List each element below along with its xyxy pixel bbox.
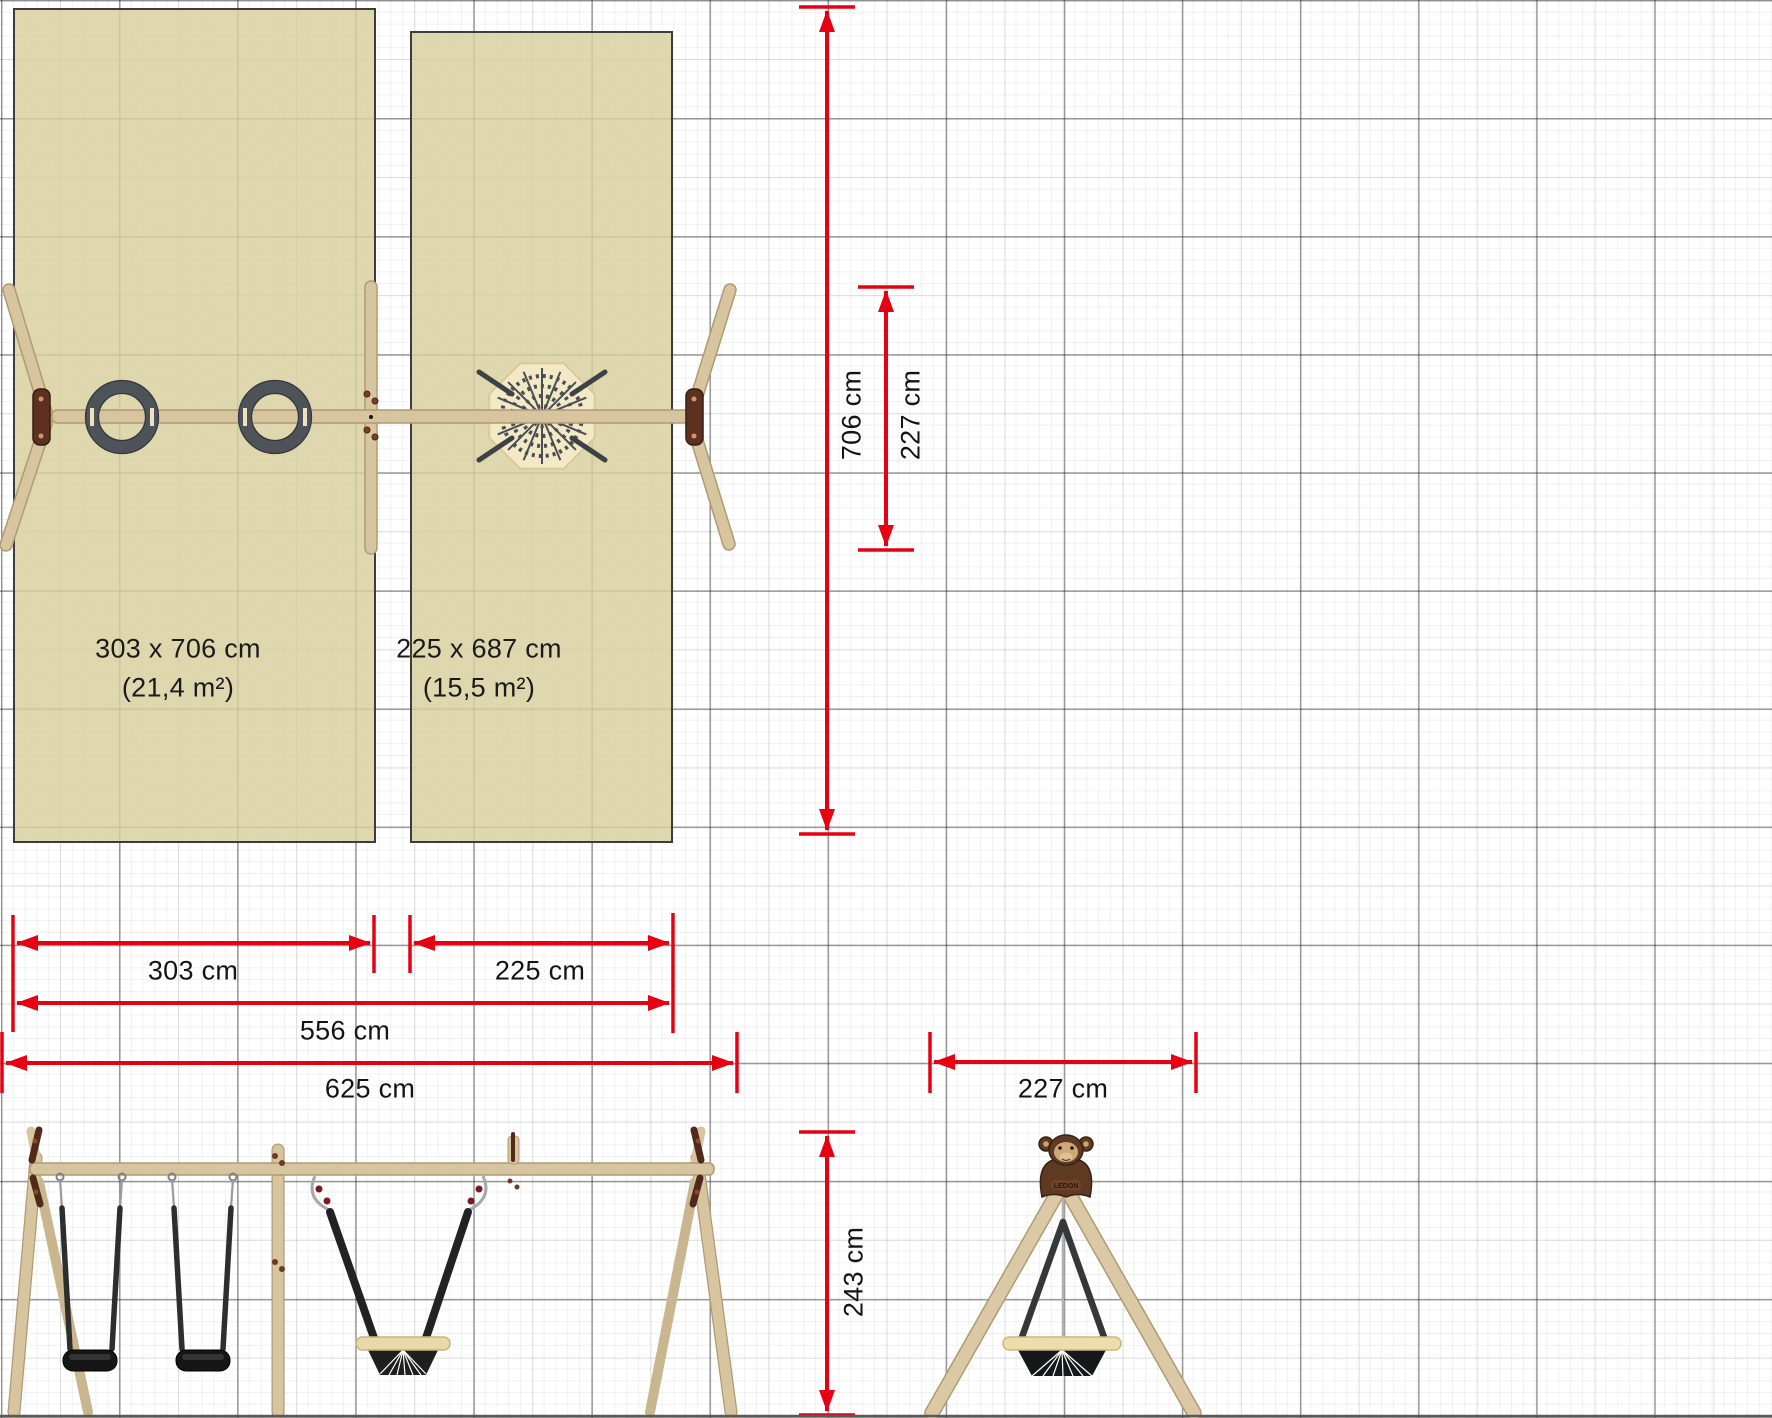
zone-right-size-label: 225 x 687 cm bbox=[396, 634, 562, 665]
frame-height-dim-label: 243 cm bbox=[839, 1227, 870, 1317]
swing-2-right-chain bbox=[223, 1208, 231, 1349]
swing-1-right-chain bbox=[112, 1208, 120, 1349]
swing-seat-1 bbox=[63, 1350, 117, 1371]
zone-height-dim-label: 706 cm bbox=[837, 370, 868, 460]
swing-2-left-chain bbox=[174, 1208, 182, 1349]
diagram-canvas: LEDON bbox=[0, 0, 1772, 1418]
total-width-dim-label: 625 cm bbox=[325, 1074, 415, 1105]
left-bay-dim-label: 303 cm bbox=[148, 956, 238, 987]
front-left-front-leg bbox=[14, 1158, 36, 1412]
side-elevation: LEDON bbox=[932, 1135, 1194, 1413]
nest-left-hanger-chain bbox=[312, 1176, 329, 1210]
dimensions bbox=[2, 7, 1196, 1415]
nest-right-rope bbox=[426, 1212, 468, 1338]
front-beam bbox=[30, 1163, 714, 1175]
beam-length-dim-label: 556 cm bbox=[300, 1016, 390, 1047]
zone-right-area-label: (15,5 m²) bbox=[423, 673, 535, 704]
nest-basket-side bbox=[1003, 1337, 1121, 1376]
zone-left-size-label: 303 x 706 cm bbox=[95, 634, 261, 665]
nest-basket-rim-side bbox=[1003, 1337, 1121, 1350]
front-elevation bbox=[14, 1130, 731, 1412]
plan-view bbox=[6, 287, 730, 548]
swing-seat-2 bbox=[176, 1350, 230, 1371]
side-frame-width-dim-label: 227 cm bbox=[1018, 1074, 1108, 1105]
front-right-rear-leg bbox=[650, 1182, 695, 1412]
brand-logo-text: LEDON bbox=[1054, 1183, 1079, 1190]
monkey-logo: LEDON bbox=[1039, 1135, 1093, 1197]
nest-right-hanger-chain bbox=[469, 1176, 486, 1210]
side-left-leg bbox=[932, 1183, 1063, 1413]
swing-seat-2-assembly bbox=[169, 1174, 237, 1372]
zone-left-area-label: (21,4 m²) bbox=[122, 673, 234, 704]
nest-left-rope bbox=[330, 1212, 374, 1338]
right-bay-dim-label: 225 cm bbox=[495, 956, 585, 987]
frame-depth-dim-label: 227 cm bbox=[896, 370, 927, 460]
side-right-leg bbox=[1063, 1183, 1194, 1413]
swing-seat-1-assembly bbox=[57, 1174, 126, 1372]
nest-basket-rim-front bbox=[356, 1337, 450, 1350]
front-beam-splice bbox=[508, 1134, 520, 1190]
nest-swing-front bbox=[312, 1176, 486, 1375]
front-right-front-leg bbox=[697, 1158, 731, 1412]
